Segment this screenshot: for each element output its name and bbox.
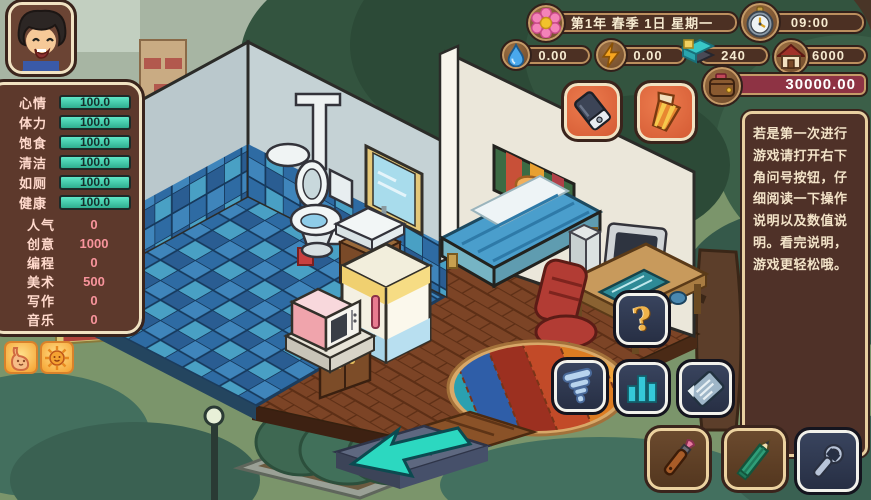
water-resource[interactable] [500,39,532,71]
brush-button[interactable] [647,428,709,490]
need-label: 如厕 [19,173,51,192]
phone-icon [572,91,612,131]
date-text: 第1年 春季 1日 星期一 [571,13,713,32]
pencil-button[interactable] [724,428,786,490]
phone-button[interactable] [564,83,620,139]
skill-row: 创意1000 [0,234,139,253]
house-icon [777,44,805,70]
tornado-button[interactable] [554,360,606,412]
skill-row: 音乐0 [0,310,139,329]
water-drop-icon [505,43,527,67]
need-bar: 100.0 [59,95,131,110]
money-banner: 30000.00 [722,72,868,97]
need-label: 清洁 [19,153,51,172]
rent-resource[interactable] [679,36,717,70]
skills-block: 人气0 创意1000 编程0 美术500 写作0 音乐0 [0,215,139,329]
skill-label: 美术 [27,272,55,291]
help-button[interactable]: ? [616,293,668,345]
flower-icon [531,8,561,38]
buff-button-sun[interactable] [40,341,74,374]
pencil-icon [731,435,779,483]
need-row: 健康100.0 [0,192,139,212]
skill-label: 人气 [27,215,55,234]
buff-button-stomach[interactable] [4,341,38,374]
wrench-button[interactable] [797,430,859,492]
money-value: 30000.00 [785,76,856,93]
need-bar: 100.0 [59,135,131,150]
wallet-icon [707,71,737,101]
need-bar: 100.0 [59,175,131,190]
stats-panel: 心情100.0 体力100.0 饱食100.0 清洁100.0 如厕100.0 … [0,82,142,334]
house-resource[interactable] [772,38,810,76]
need-label: 饱食 [19,133,51,152]
water-value: 0.00 [538,48,567,63]
need-row: 如厕100.0 [0,172,139,192]
house-value: 6000 [812,48,845,63]
need-row: 清洁100.0 [0,152,139,172]
avatar [11,5,71,71]
need-bar: 100.0 [59,115,131,130]
clock-indicator[interactable] [739,1,781,43]
power-value: 0.00 [633,48,662,63]
skill-label: 写作 [27,291,55,310]
avatar-frame[interactable] [8,2,74,74]
need-label: 健康 [19,193,51,212]
rent-value: 240 [721,48,746,63]
food-button[interactable] [637,83,695,141]
tip-panel: 若是第一次进行游戏请打开右下角问号按钮，仔细阅读一下操作说明以及数值说明。看完说… [742,111,868,457]
clock-icon [744,6,776,38]
need-bar: 100.0 [59,155,131,170]
need-bar: 100.0 [59,195,131,210]
save-card-icon [686,369,726,409]
food-bag-icon [645,91,687,133]
game-screen: 心情100.0 体力100.0 饱食100.0 清洁100.0 如厕100.0 … [0,0,871,500]
lightning-icon [600,42,622,68]
skill-value: 0 [55,217,133,232]
need-row: 饱食100.0 [0,132,139,152]
stomach-icon [8,345,34,371]
skill-row: 写作0 [0,291,139,310]
need-row: 体力100.0 [0,112,139,132]
tip-text: 若是第一次进行游戏请打开右下角问号按钮，仔细阅读一下操作说明以及数值说明。看完说… [753,126,848,272]
season-indicator[interactable] [526,3,566,43]
sun-icon [44,345,70,371]
skill-value: 500 [55,274,133,289]
power-resource[interactable] [594,38,628,72]
wallet-indicator[interactable] [701,65,743,107]
need-row: 心情100.0 [0,92,139,112]
wrench-icon [806,439,850,483]
save-button[interactable] [679,362,732,415]
skill-value: 1000 [55,236,133,251]
stats-chart-button[interactable] [616,362,668,414]
bar-chart-icon [624,370,660,406]
skill-value: 0 [55,255,133,270]
skill-label: 音乐 [27,310,55,329]
skill-label: 编程 [27,253,55,272]
skill-row: 人气0 [0,215,139,234]
time-text: 09:00 [791,15,829,30]
question-icon: ? [630,299,654,339]
need-label: 心情 [19,93,51,112]
need-label: 体力 [19,113,51,132]
bed-icon [679,36,717,70]
skill-row: 编程0 [0,253,139,272]
tornado-icon [561,367,599,405]
skill-label: 创意 [27,234,55,253]
skill-value: 0 [55,293,133,308]
skill-row: 美术500 [0,272,139,291]
skill-value: 0 [55,312,133,327]
date-banner: 第1年 春季 1日 星期一 [545,11,739,34]
paintbrush-icon [655,436,701,482]
